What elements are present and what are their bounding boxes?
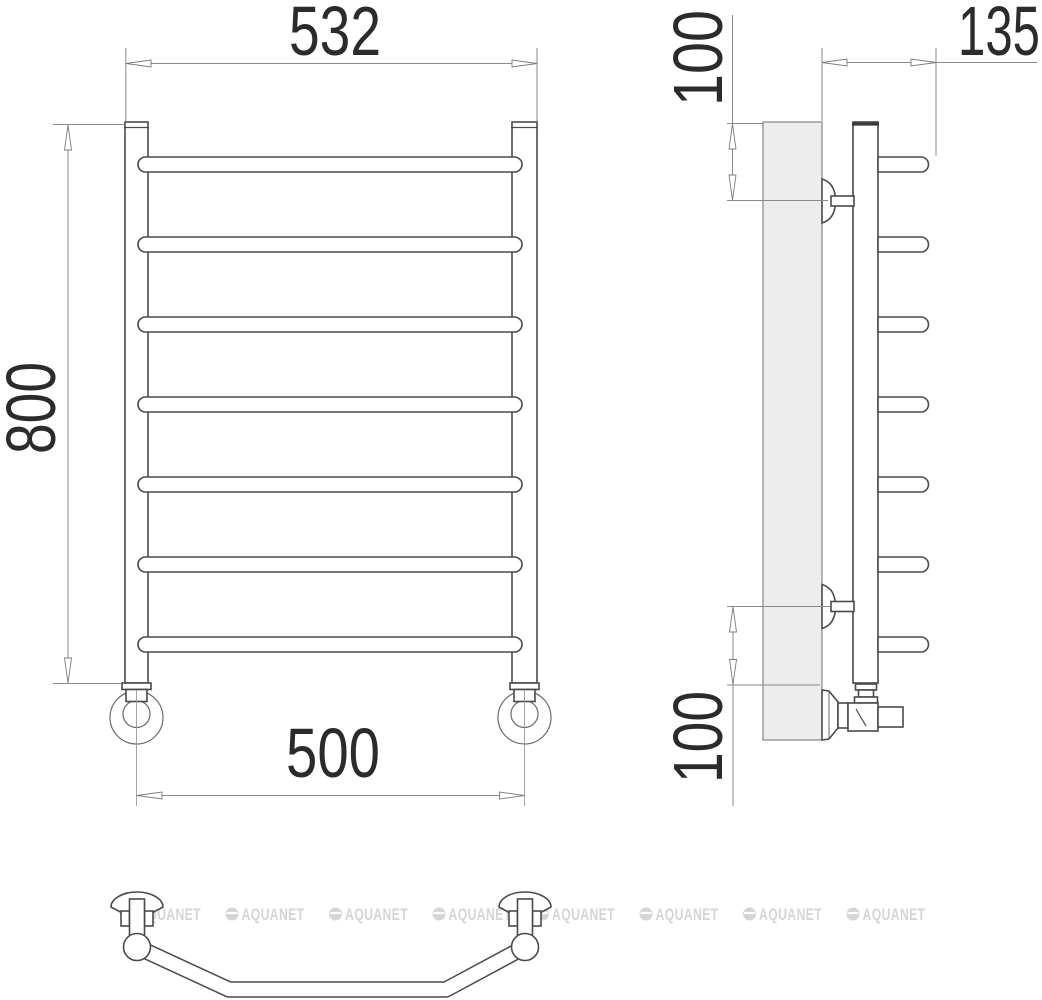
- tube-elbow-right: [512, 934, 539, 961]
- rung-bar: [138, 477, 522, 492]
- rung-bar-side: [878, 637, 929, 652]
- valve-spout: [878, 707, 903, 727]
- dimension-label-532: 532: [289, 0, 381, 70]
- rung-bar: [138, 157, 522, 172]
- foot-bracket-boss: [838, 703, 848, 728]
- rung-bar: [138, 557, 522, 572]
- rung-bar-side: [878, 237, 929, 252]
- rung-bar: [138, 237, 522, 252]
- rung-bar: [138, 397, 522, 412]
- dimension-label-100-top: 100: [659, 10, 737, 106]
- valve-neck: [859, 690, 874, 697]
- wall-panel: [763, 122, 822, 740]
- dimension-label-100-bottom: 100: [659, 691, 737, 783]
- valve-nut-lower: [855, 697, 878, 703]
- rung-bar-side: [878, 397, 929, 412]
- rung-bar: [138, 637, 522, 652]
- rung-bar-side: [878, 317, 929, 332]
- drawing-canvas: AQUANET: [0, 0, 1042, 1000]
- rung-bar-side: [878, 477, 929, 492]
- tube-elbow-left: [124, 934, 151, 961]
- valve-nut: [856, 684, 877, 690]
- valve-body: [848, 703, 878, 731]
- rung-bar: [138, 317, 522, 332]
- rung-bar-side: [878, 157, 929, 172]
- technical-drawing: AQUANET: [0, 0, 1042, 1000]
- dimension-label-800: 800: [0, 362, 70, 454]
- bracket-stem: [831, 196, 854, 206]
- dimension-label-500: 500: [286, 714, 380, 792]
- dimension-label-135: 135: [958, 0, 1040, 70]
- rung-bar-side: [878, 557, 929, 572]
- bracket-stem: [831, 602, 854, 612]
- post-side: [853, 122, 878, 683]
